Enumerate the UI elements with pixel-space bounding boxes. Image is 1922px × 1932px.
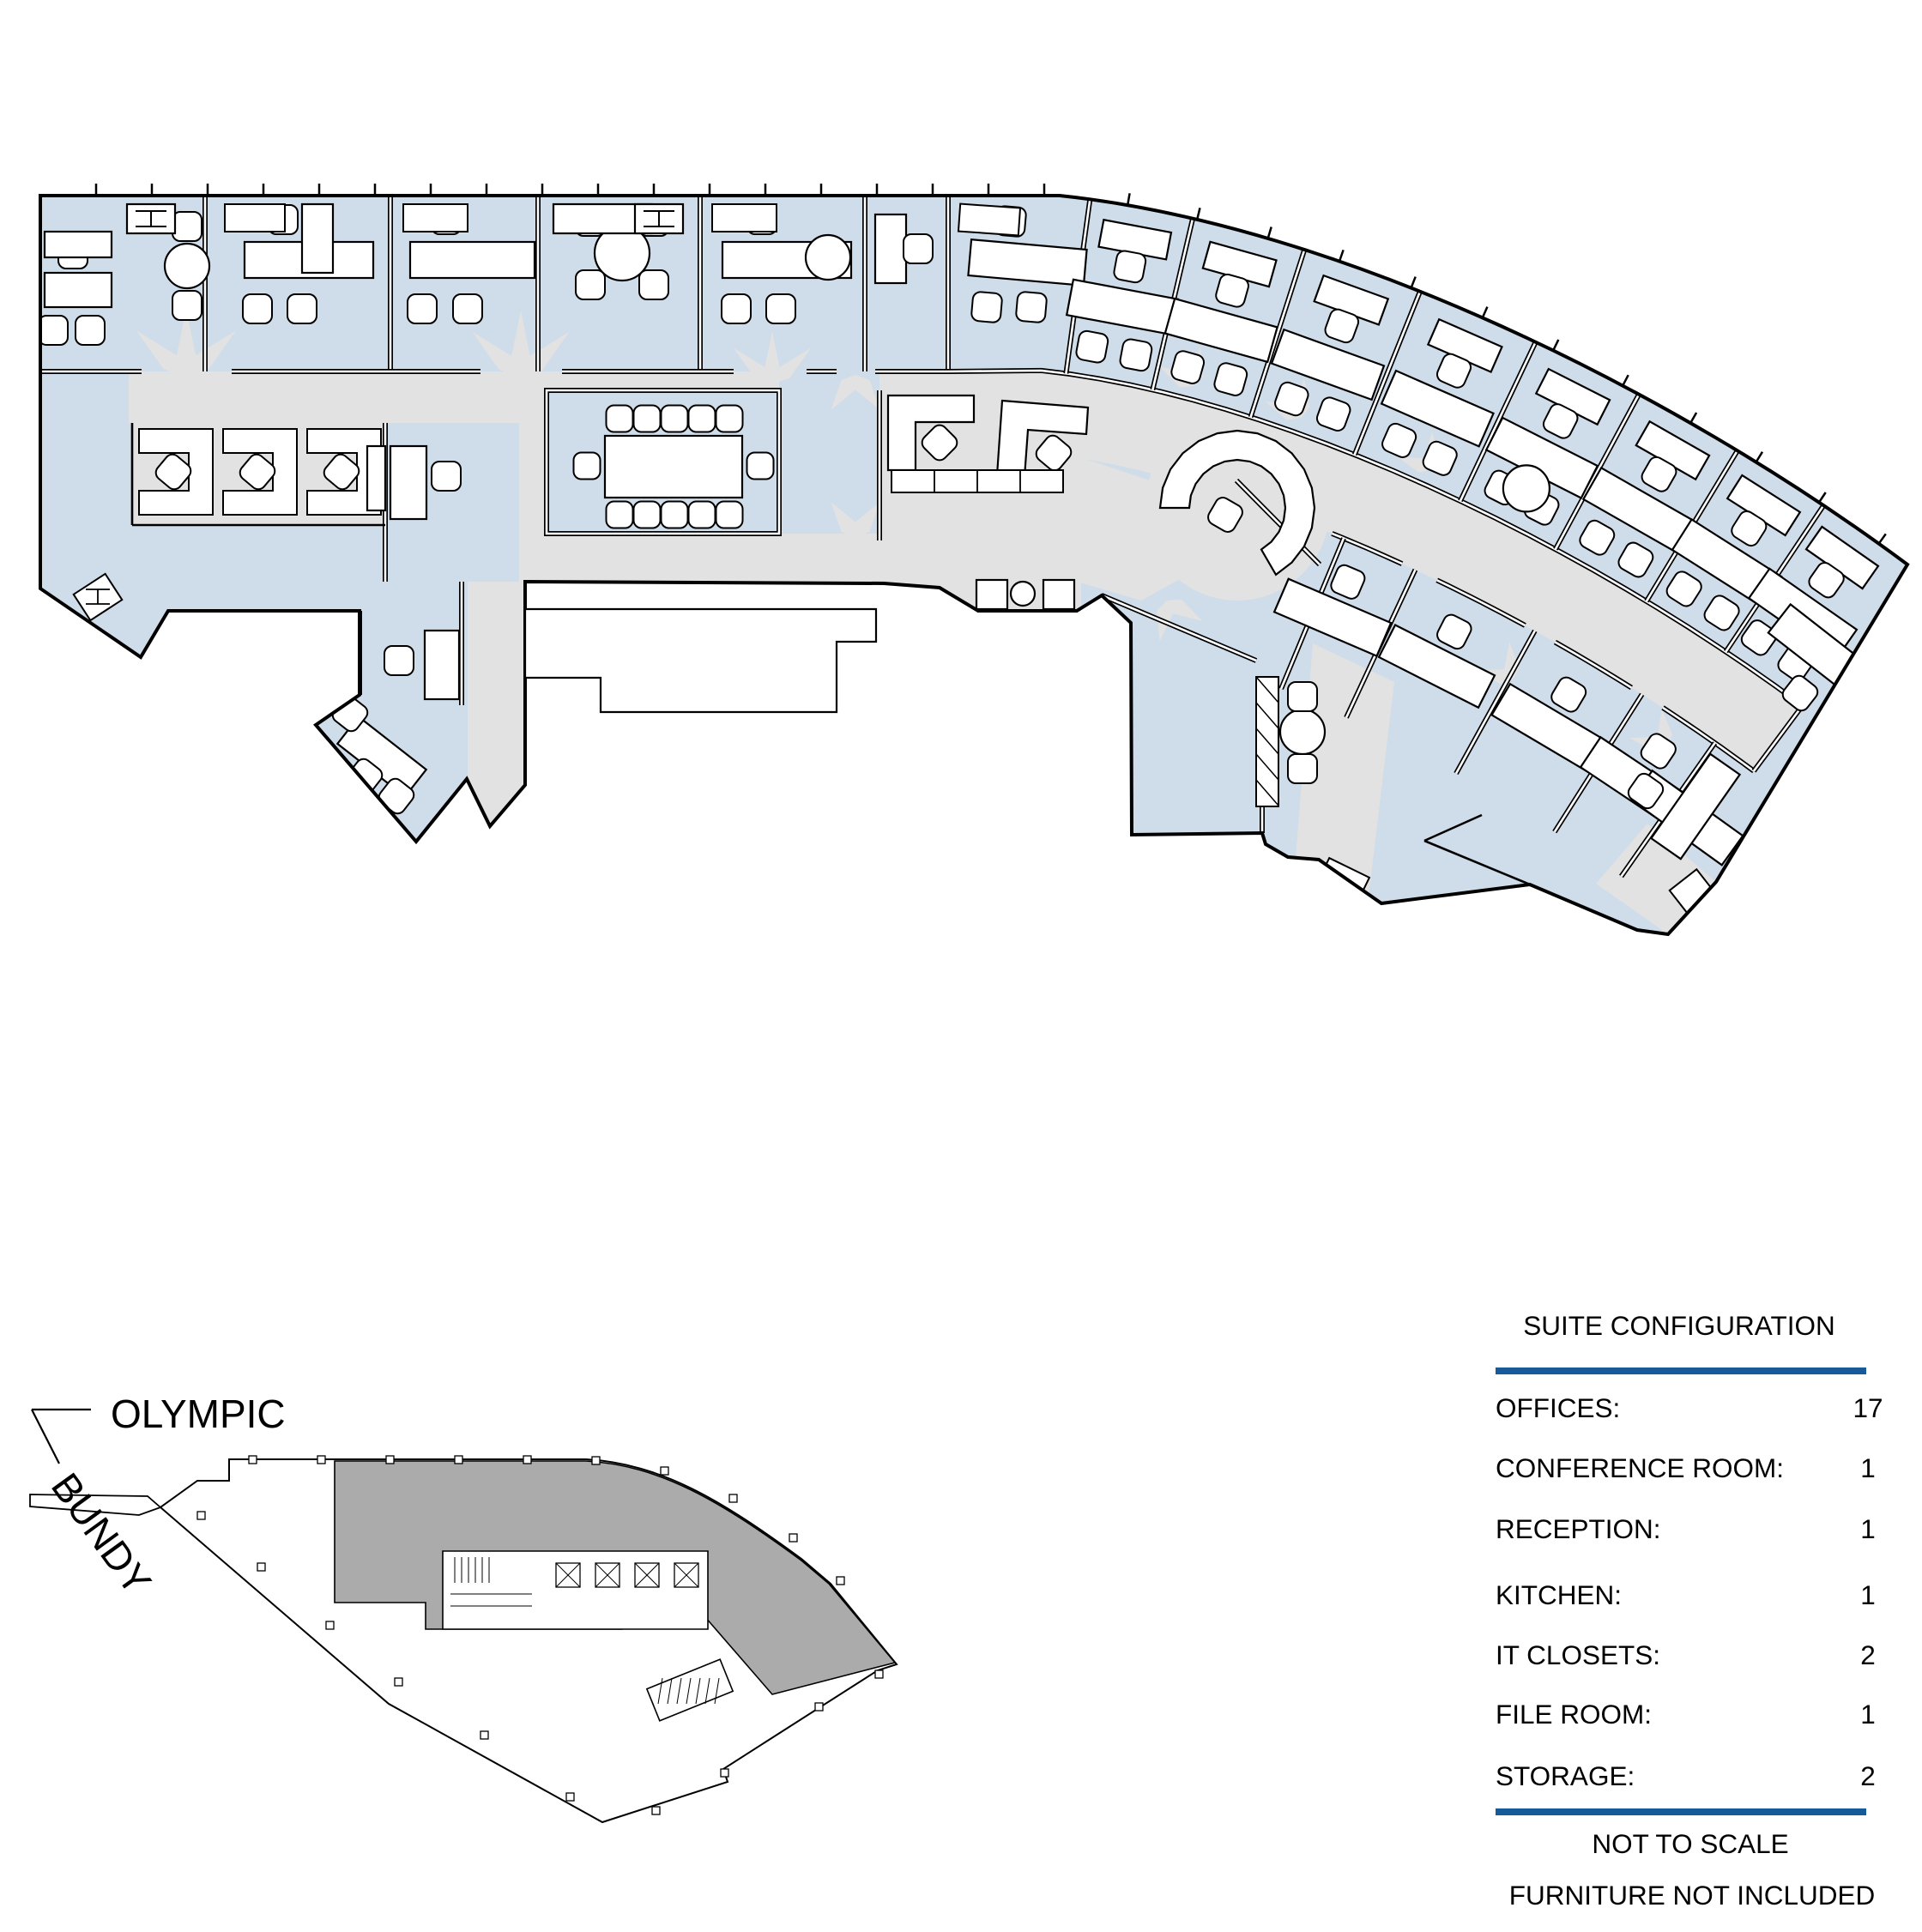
svg-text:CONFERENCE ROOM:: CONFERENCE ROOM: (1496, 1452, 1784, 1483)
svg-text:OLYMPIC: OLYMPIC (111, 1392, 286, 1436)
svg-text:1: 1 (1860, 1513, 1876, 1544)
svg-text:1: 1 (1860, 1452, 1876, 1483)
svg-text:NOT TO SCALE: NOT TO SCALE (1592, 1828, 1788, 1859)
svg-text:OFFICES:: OFFICES: (1496, 1392, 1620, 1423)
svg-text:1: 1 (1860, 1699, 1876, 1730)
svg-text:2: 2 (1860, 1639, 1876, 1670)
svg-text:STORAGE:: STORAGE: (1496, 1760, 1635, 1791)
svg-text:FILE ROOM:: FILE ROOM: (1496, 1699, 1652, 1730)
svg-text:2: 2 (1860, 1760, 1876, 1791)
svg-text:RECEPTION:: RECEPTION: (1496, 1513, 1661, 1544)
svg-text:17: 17 (1852, 1392, 1883, 1423)
svg-text:1: 1 (1860, 1579, 1876, 1610)
svg-text:IT CLOSETS:: IT CLOSETS: (1496, 1639, 1660, 1670)
svg-text:FURNITURE NOT INCLUDED: FURNITURE NOT INCLUDED (1509, 1880, 1875, 1911)
svg-text:SUITE CONFIGURATION: SUITE CONFIGURATION (1523, 1310, 1834, 1341)
svg-text:KITCHEN:: KITCHEN: (1496, 1579, 1622, 1610)
